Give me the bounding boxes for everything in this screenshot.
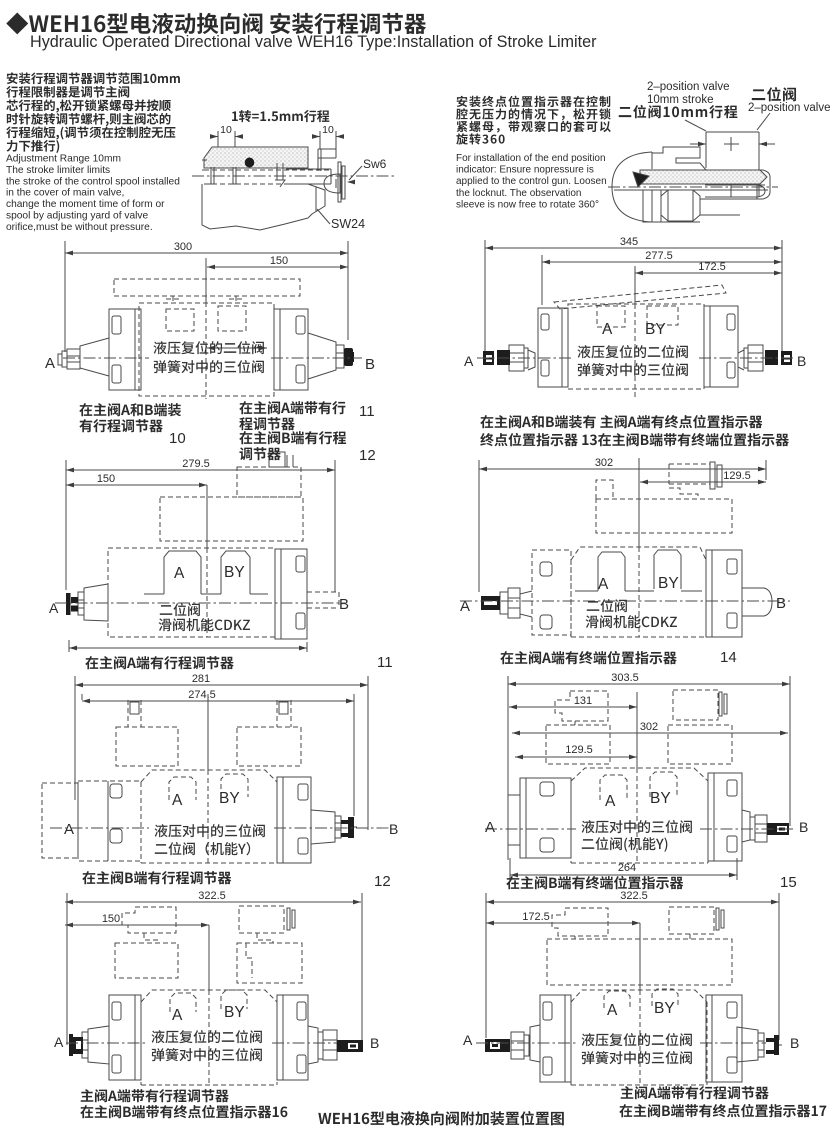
svg-text:A: A: [172, 792, 183, 809]
svg-text:2–position valve: 2–position valve: [647, 81, 729, 93]
svg-text:Sw6: Sw6: [363, 157, 387, 171]
svg-text:A: A: [485, 819, 495, 836]
svg-text:274.5: 274.5: [188, 689, 216, 701]
svg-text:10: 10: [220, 124, 232, 136]
svg-text:277.5: 277.5: [645, 250, 673, 262]
svg-text:A: A: [607, 1002, 618, 1019]
svg-text:B: B: [790, 1035, 799, 1051]
svg-text:The stroke limiter limits: The stroke limiter limits: [6, 165, 110, 176]
svg-text:10: 10: [169, 430, 186, 447]
svg-text:A: A: [64, 821, 74, 838]
svg-text:BY: BY: [224, 564, 245, 581]
svg-text:B: B: [799, 819, 808, 835]
svg-text:2–position valve: 2–position valve: [748, 102, 830, 114]
svg-text:A: A: [49, 600, 59, 616]
svg-text:303.5: 303.5: [611, 672, 639, 684]
svg-text:11: 11: [377, 654, 393, 671]
svg-text:B: B: [339, 596, 349, 613]
svg-text:279.5: 279.5: [182, 458, 210, 470]
svg-text:10mm stroke: 10mm stroke: [647, 94, 713, 106]
svg-text:12: 12: [359, 447, 376, 464]
svg-text:345: 345: [620, 236, 638, 248]
svg-text:150: 150: [97, 473, 115, 485]
svg-text:131: 131: [574, 695, 592, 707]
svg-text:129.5: 129.5: [723, 470, 751, 482]
svg-text:129.5: 129.5: [565, 744, 593, 756]
svg-text:300: 300: [174, 241, 192, 253]
svg-text:A: A: [602, 321, 613, 338]
svg-text:264: 264: [618, 862, 636, 874]
svg-text:A: A: [172, 1007, 183, 1024]
svg-text:14: 14: [720, 649, 737, 666]
svg-text:A: A: [605, 793, 616, 810]
svg-text:BY: BY: [645, 321, 666, 338]
svg-text:322.5: 322.5: [198, 890, 226, 902]
svg-text:A: A: [54, 1034, 64, 1050]
svg-text:12: 12: [374, 873, 391, 890]
svg-text:A: A: [45, 355, 55, 372]
svg-text:BY: BY: [650, 790, 671, 807]
svg-text:BY: BY: [654, 1000, 675, 1017]
svg-text:BY: BY: [658, 575, 679, 592]
svg-text:A: A: [598, 576, 609, 593]
svg-text:15: 15: [780, 874, 797, 891]
svg-text:B: B: [370, 1035, 379, 1051]
svg-text:172.5: 172.5: [698, 261, 726, 273]
svg-text:For installation of the end po: For installation of the end position: [456, 153, 606, 164]
svg-text:applied to the control gun. Lo: applied to the control gun. Loosen: [456, 176, 607, 187]
svg-text:B: B: [389, 821, 398, 837]
svg-text:BY: BY: [219, 790, 240, 807]
svg-text:SW24: SW24: [331, 217, 365, 231]
svg-text:11: 11: [359, 403, 375, 420]
svg-text:10: 10: [322, 124, 334, 136]
svg-text:Adjustment Range 10mm: Adjustment Range 10mm: [6, 154, 121, 165]
svg-text:B: B: [797, 353, 806, 369]
svg-text:Hydraulic Operated Directional: Hydraulic Operated Directional valve WEH…: [30, 33, 597, 51]
svg-text:172.5: 172.5: [522, 911, 550, 923]
svg-text:A: A: [463, 1032, 473, 1048]
svg-text:A: A: [464, 353, 474, 369]
svg-text:in the cover of main valve,: in the cover of main valve,: [6, 188, 124, 199]
svg-text:indicator: Ensure nopressure i: indicator: Ensure nopressure is: [456, 165, 594, 176]
svg-text:B: B: [776, 595, 786, 612]
svg-text:the stroke of the control spoo: the stroke of the control spool installe…: [6, 176, 180, 187]
svg-text:150: 150: [102, 913, 120, 925]
svg-text:change the moment time of form: change the moment time of form or: [6, 199, 165, 210]
svg-text:A: A: [174, 565, 185, 582]
svg-text:150: 150: [270, 255, 288, 267]
svg-text:sleeve is now free to rotate 3: sleeve is now free to rotate 360°: [456, 199, 599, 210]
svg-text:BY: BY: [224, 1004, 245, 1021]
svg-text:302: 302: [640, 721, 658, 733]
svg-text:the locknut. The observation: the locknut. The observation: [456, 188, 581, 199]
svg-text:302: 302: [595, 457, 613, 469]
svg-text:281: 281: [192, 673, 210, 685]
svg-text:322.5: 322.5: [620, 890, 648, 902]
svg-text:B: B: [365, 356, 375, 373]
svg-text:orifice,must be without pressu: orifice,must be without pressure.: [6, 222, 153, 233]
svg-text:spool by adjusting yard of val: spool by adjusting yard of valve: [6, 211, 148, 222]
